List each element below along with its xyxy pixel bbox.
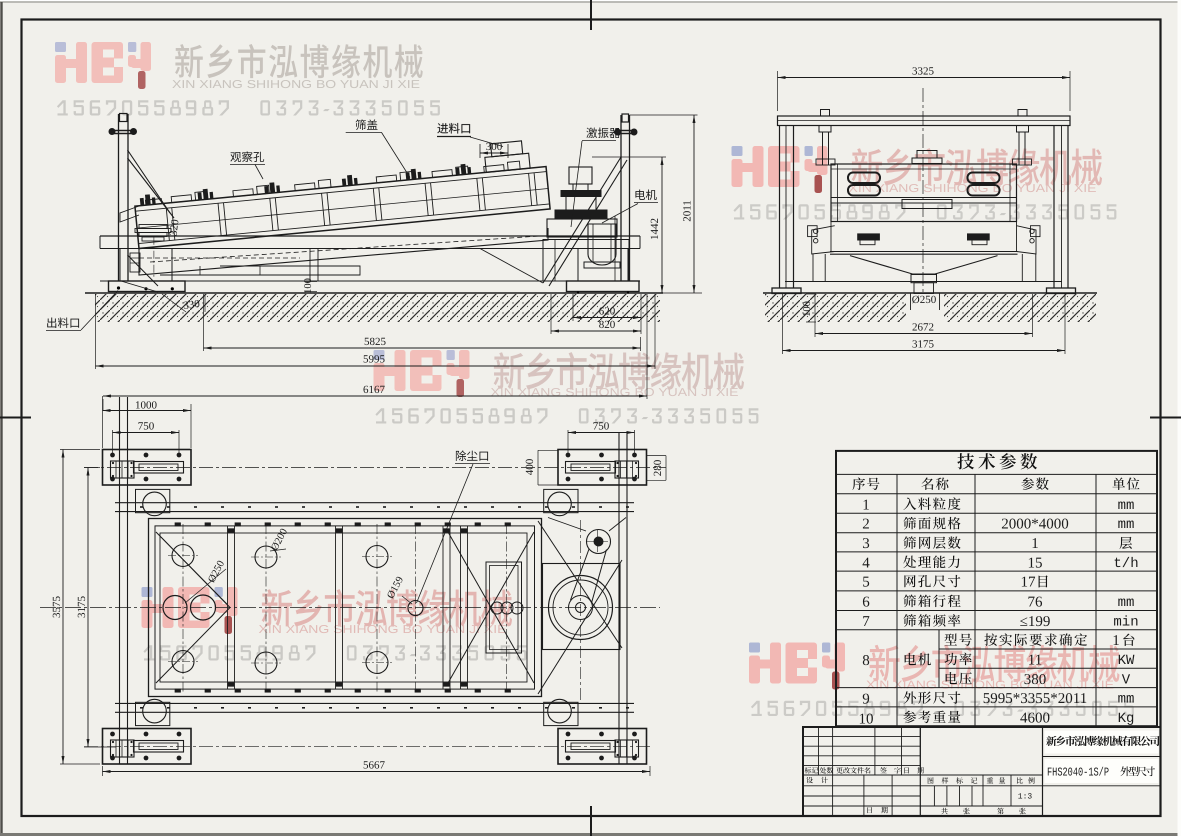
svg-text:820: 820 <box>599 319 616 331</box>
svg-text:750: 750 <box>138 421 155 433</box>
svg-text:15: 15 <box>1028 555 1043 571</box>
svg-text:17: 17 <box>1021 575 1037 591</box>
svg-text:11: 11 <box>1028 653 1042 669</box>
svg-text:XIN XIANG SHIHONG BO YUAN JI X: XIN XIANG SHIHONG BO YUAN JI XIE <box>491 387 739 399</box>
svg-text:V: V <box>1122 672 1131 688</box>
svg-text:100: 100 <box>802 301 813 317</box>
svg-text:330: 330 <box>183 298 202 312</box>
svg-text:6: 6 <box>862 594 870 610</box>
svg-text:5995: 5995 <box>363 354 386 366</box>
svg-text:min: min <box>1113 615 1138 631</box>
svg-text:750: 750 <box>593 421 610 433</box>
svg-text:mm: mm <box>1118 692 1135 708</box>
svg-text:400: 400 <box>524 458 536 475</box>
svg-text:≤199: ≤199 <box>1020 614 1051 630</box>
svg-text:Kg: Kg <box>1118 711 1135 727</box>
svg-text:1:3: 1:3 <box>1018 793 1033 802</box>
svg-text:4600: 4600 <box>1020 710 1050 726</box>
svg-text:3325: 3325 <box>912 66 935 78</box>
svg-text:3: 3 <box>862 536 870 552</box>
svg-text:5667: 5667 <box>363 760 386 772</box>
svg-text:2: 2 <box>862 517 870 533</box>
svg-text:XIN XIANG SHIHONG BO YUAN JI X: XIN XIANG SHIHONG BO YUAN JI XIE <box>172 79 420 91</box>
svg-text:XIN XIANG SHIHONG BO YUAN JI X: XIN XIANG SHIHONG BO YUAN JI XIE <box>866 680 1114 692</box>
svg-text:2672: 2672 <box>912 322 934 334</box>
svg-text:320: 320 <box>168 218 182 236</box>
svg-text:380: 380 <box>1024 672 1047 688</box>
svg-text:1: 1 <box>1031 536 1039 552</box>
svg-text:2011: 2011 <box>682 200 694 222</box>
svg-text:1: 1 <box>1112 633 1120 649</box>
svg-text:3575: 3575 <box>51 596 63 619</box>
svg-text:8: 8 <box>862 653 870 669</box>
svg-text:5825: 5825 <box>364 336 387 348</box>
svg-text:mm: mm <box>1118 498 1135 514</box>
svg-text:10: 10 <box>859 711 874 727</box>
svg-text:FHS2040-1S/P: FHS2040-1S/P <box>1047 766 1109 780</box>
svg-text:1442: 1442 <box>649 218 661 240</box>
svg-text:6167: 6167 <box>363 384 386 396</box>
svg-text:1000: 1000 <box>135 400 158 412</box>
svg-text:620: 620 <box>599 306 616 318</box>
svg-text:mm: mm <box>1118 517 1135 533</box>
svg-text:XIN XIANG SHIHONG BO YUAN JI X: XIN XIANG SHIHONG BO YUAN JI XIE <box>259 624 507 636</box>
svg-text:2000*4000: 2000*4000 <box>1001 517 1069 533</box>
svg-text:mm: mm <box>1118 595 1135 611</box>
svg-text:KW: KW <box>1118 653 1135 669</box>
svg-text:76: 76 <box>1028 594 1044 610</box>
svg-text:3175: 3175 <box>76 596 88 619</box>
svg-text:9: 9 <box>862 692 870 708</box>
svg-text:5995*3355*2011: 5995*3355*2011 <box>983 691 1087 707</box>
svg-text:280: 280 <box>652 459 664 476</box>
svg-text:4: 4 <box>862 555 870 571</box>
svg-text:3175: 3175 <box>912 339 935 351</box>
svg-text:1: 1 <box>862 497 870 513</box>
svg-text:Ø250: Ø250 <box>912 294 937 306</box>
svg-text:300: 300 <box>486 141 503 153</box>
svg-text:7: 7 <box>862 614 870 630</box>
svg-text:5: 5 <box>862 575 870 591</box>
svg-text:t/h: t/h <box>1113 556 1138 572</box>
